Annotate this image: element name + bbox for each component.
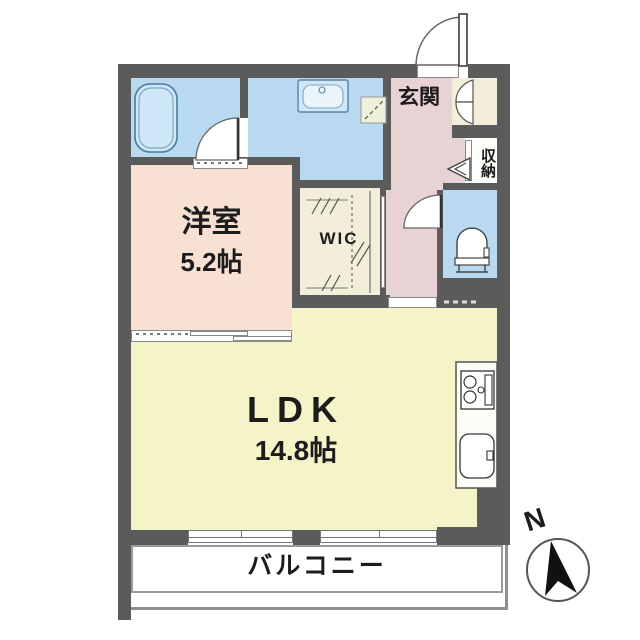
wic-label: WIC [298,230,380,249]
compass-icon [527,539,589,601]
storage-folding-door-icon [448,158,470,180]
kitchen-counter [456,362,497,488]
storage-label: 収納 [471,141,495,185]
toilet-door-icon [404,195,441,228]
entrance-door-icon [416,14,467,66]
bathroom-door-icon [196,118,238,160]
fixtures-layer [0,0,640,640]
shoe-closet-double-door-icon [456,80,473,124]
toilet-icon [455,228,489,272]
bathtub-icon [135,84,177,152]
bedroom-name-label: 洋室 [131,206,292,239]
kitchen-sink-icon [460,434,494,478]
genkan-label: 玄関 [386,86,452,109]
gas-stove-icon [461,371,494,409]
bedroom-size-label: 5.2帖 [131,248,292,277]
ldk-size-label: 14.8帖 [131,436,461,467]
floor-plan: 洋室 5.2帖 LDK 14.8帖 WIC 玄関 収納 バルコニー N [0,0,640,640]
ldk-name-label: LDK [131,390,461,430]
washroom-door-icon [361,97,386,123]
balcony-label: バルコニー [131,553,503,581]
washbasin-icon [298,80,348,112]
